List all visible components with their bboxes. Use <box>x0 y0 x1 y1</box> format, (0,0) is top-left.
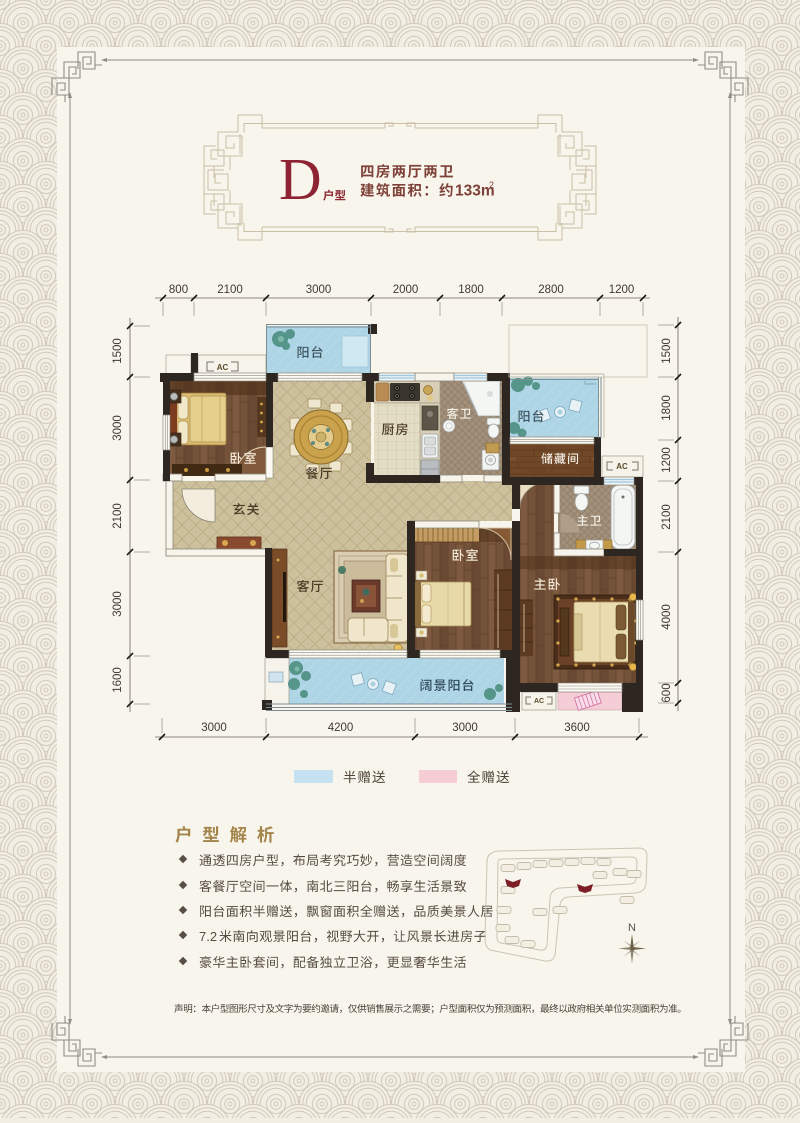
svg-text:1200: 1200 <box>609 284 635 296</box>
svg-text:3600: 3600 <box>564 722 590 734</box>
svg-text:2100: 2100 <box>217 284 243 296</box>
svg-text:D: D <box>279 146 322 212</box>
svg-text:3000: 3000 <box>452 722 478 734</box>
svg-text:7.2: 7.2 <box>199 929 217 944</box>
svg-text:800: 800 <box>169 284 188 296</box>
svg-text:1500: 1500 <box>112 338 124 364</box>
svg-text:2100: 2100 <box>661 504 673 530</box>
svg-text:2000: 2000 <box>393 284 419 296</box>
svg-text:600: 600 <box>661 683 673 702</box>
svg-text:N: N <box>628 922 636 934</box>
svg-text:AC: AC <box>616 462 628 471</box>
svg-text:2: 2 <box>489 180 494 190</box>
svg-text:1600: 1600 <box>112 667 124 693</box>
svg-text:AC: AC <box>534 698 544 705</box>
svg-text:1800: 1800 <box>661 395 673 421</box>
svg-text:3000: 3000 <box>201 722 227 734</box>
svg-text:1200: 1200 <box>661 447 673 473</box>
svg-text:3000: 3000 <box>306 284 332 296</box>
svg-text:3000: 3000 <box>112 415 124 441</box>
svg-text:2100: 2100 <box>112 503 124 529</box>
svg-text:2800: 2800 <box>538 284 564 296</box>
svg-text:4200: 4200 <box>328 722 354 734</box>
svg-text:4000: 4000 <box>661 604 673 630</box>
svg-text:1500: 1500 <box>661 338 673 364</box>
svg-text:3000: 3000 <box>112 591 124 617</box>
svg-text:1800: 1800 <box>458 284 484 296</box>
svg-text:AC: AC <box>217 363 229 372</box>
